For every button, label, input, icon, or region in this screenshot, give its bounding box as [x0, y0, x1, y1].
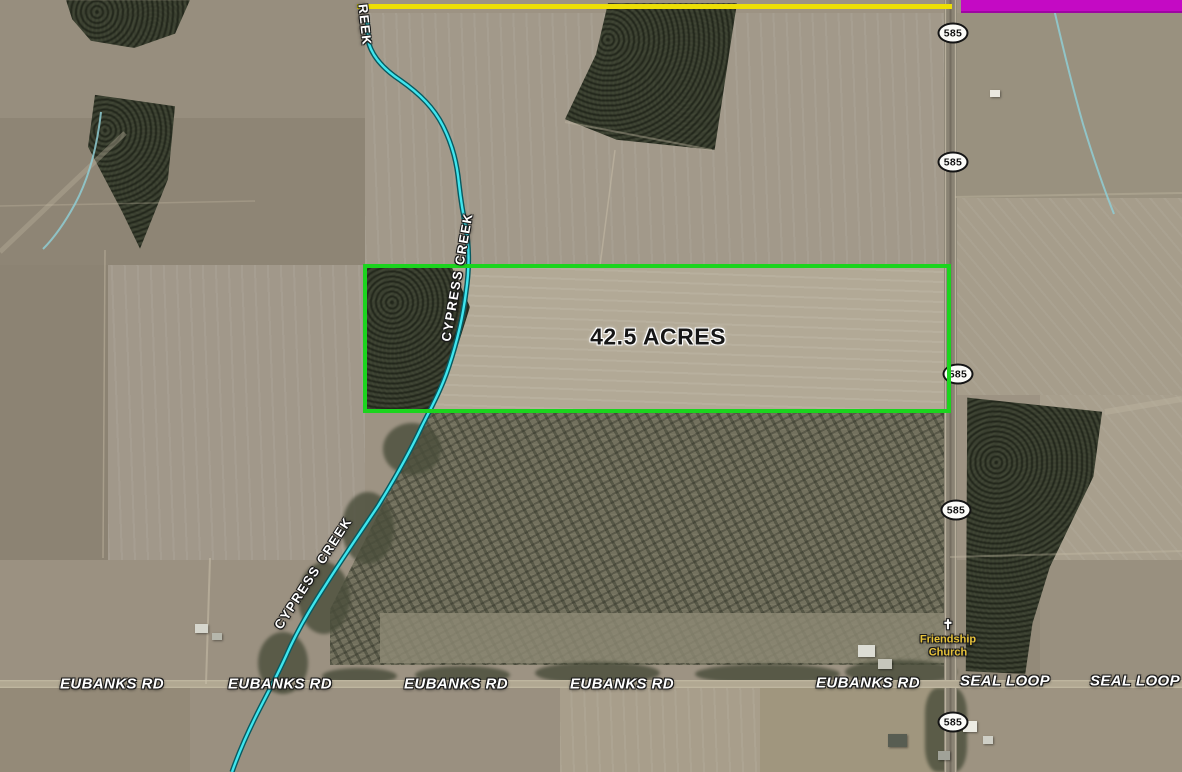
highway-shield-585: 585 — [938, 23, 969, 44]
road-label-eubanks-rd: EUBANKS RD — [570, 676, 674, 693]
road-label-seal-loop: SEAL LOOP — [960, 673, 1050, 690]
yellow-boundary-line — [357, 4, 952, 9]
highway-shield-label: 585 — [949, 368, 967, 380]
adjacent-parcel-outline — [961, 0, 1182, 13]
road-label-eubanks-rd: EUBANKS RD — [404, 676, 508, 693]
parcel-area-label: 42.5 ACRES — [590, 324, 726, 351]
church-label-line1: Friendship — [920, 633, 976, 646]
satellite-map: 585 585 585 585 585 42.5 ACRES CYPRESS C… — [0, 0, 1182, 772]
road-label-eubanks-rd: EUBANKS RD — [816, 675, 920, 692]
road-label-eubanks-rd: EUBANKS RD — [228, 676, 332, 693]
highway-shield-585: 585 — [941, 500, 972, 521]
highway-shield-585: 585 — [938, 152, 969, 173]
church-label: Friendship Church — [920, 633, 976, 658]
highway-shield-585: 585 — [938, 712, 969, 733]
highway-shield-label: 585 — [944, 27, 962, 39]
church-cross-icon: ✝ — [943, 617, 954, 633]
highway-shield-label: 585 — [944, 716, 962, 728]
road-label-eubanks-rd: EUBANKS RD — [60, 676, 164, 693]
highway-shield-label: 585 — [944, 156, 962, 168]
highway-shield-label: 585 — [947, 504, 965, 516]
road-label-seal-loop: SEAL LOOP — [1090, 673, 1180, 690]
church-label-line2: Church — [920, 646, 976, 659]
